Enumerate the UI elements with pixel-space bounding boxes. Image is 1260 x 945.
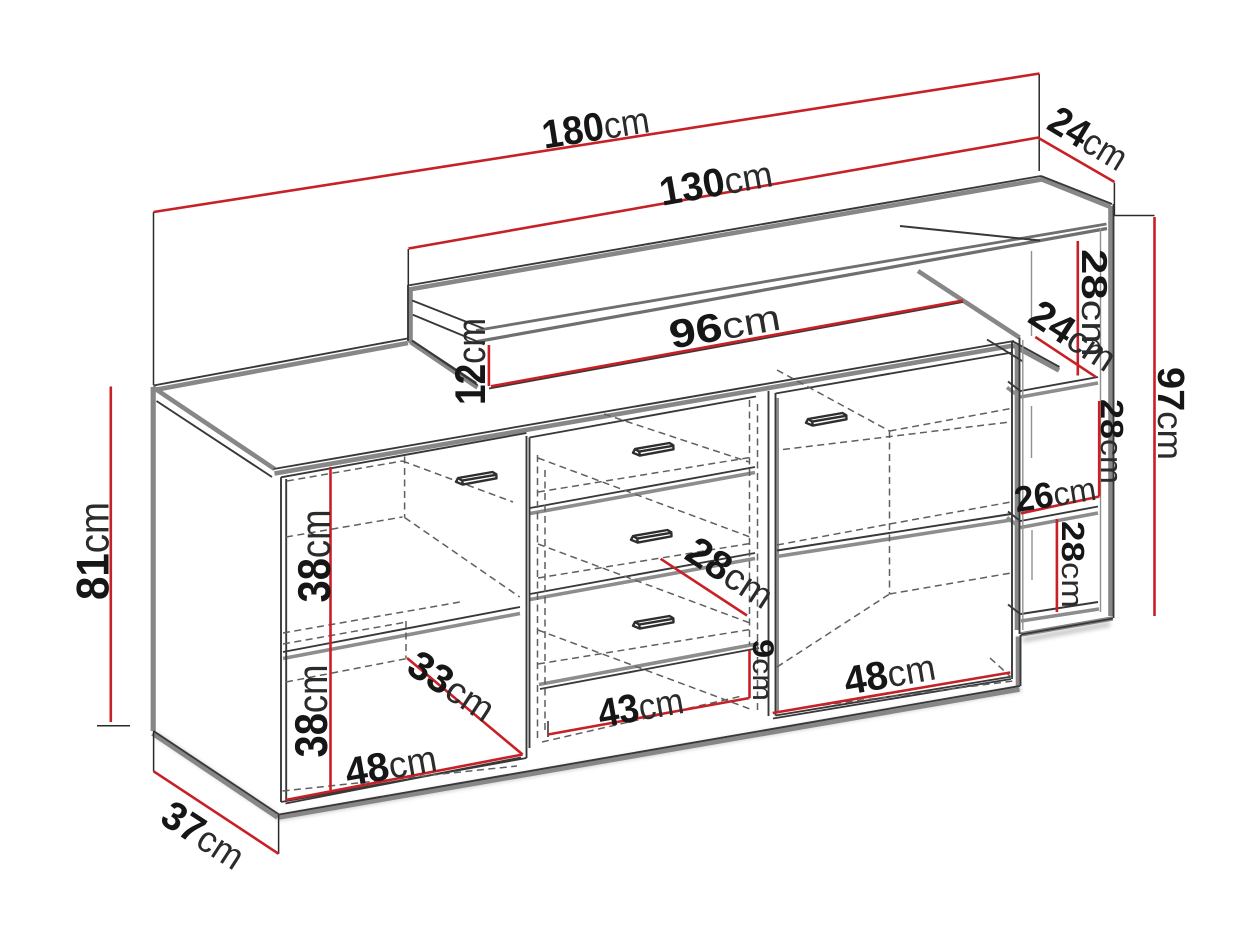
svg-text:38cm: 38cm [288, 510, 340, 603]
svg-text:48cm: 48cm [841, 645, 939, 704]
svg-text:33cm: 33cm [400, 642, 504, 731]
svg-text:9cm: 9cm [746, 639, 779, 701]
svg-text:12cm: 12cm [447, 318, 495, 405]
svg-text:180cm: 180cm [539, 97, 653, 157]
svg-text:48cm: 48cm [342, 736, 440, 795]
svg-text:26cm: 26cm [1011, 467, 1098, 520]
svg-text:38cm: 38cm [285, 665, 337, 758]
svg-text:28cm: 28cm [1094, 399, 1130, 484]
svg-text:37cm: 37cm [153, 793, 252, 879]
svg-text:97cm: 97cm [1149, 367, 1191, 460]
svg-text:28cm: 28cm [1055, 521, 1091, 608]
svg-text:130cm: 130cm [656, 151, 776, 214]
svg-text:43cm: 43cm [595, 678, 687, 736]
svg-text:81cm: 81cm [67, 502, 119, 600]
